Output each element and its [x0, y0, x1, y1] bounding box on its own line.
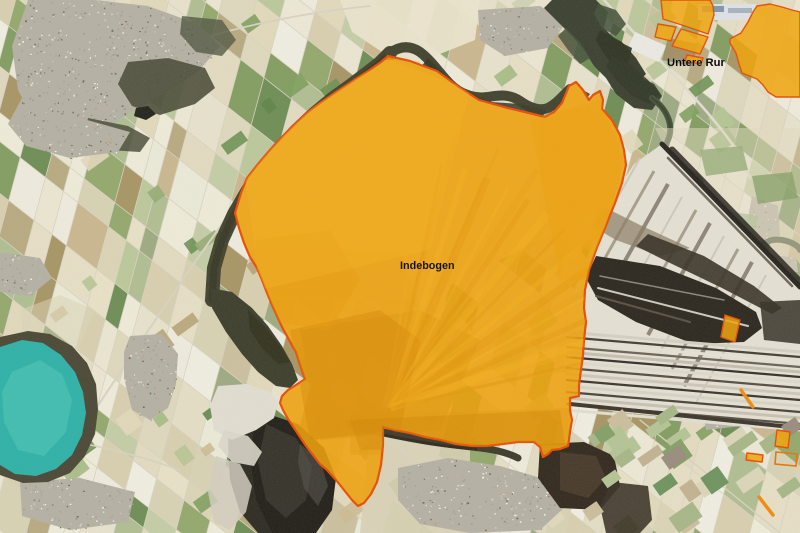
svg-text:Indebogen: Indebogen: [400, 260, 455, 272]
svg-text:Untere Rur: Untere Rur: [667, 57, 725, 69]
